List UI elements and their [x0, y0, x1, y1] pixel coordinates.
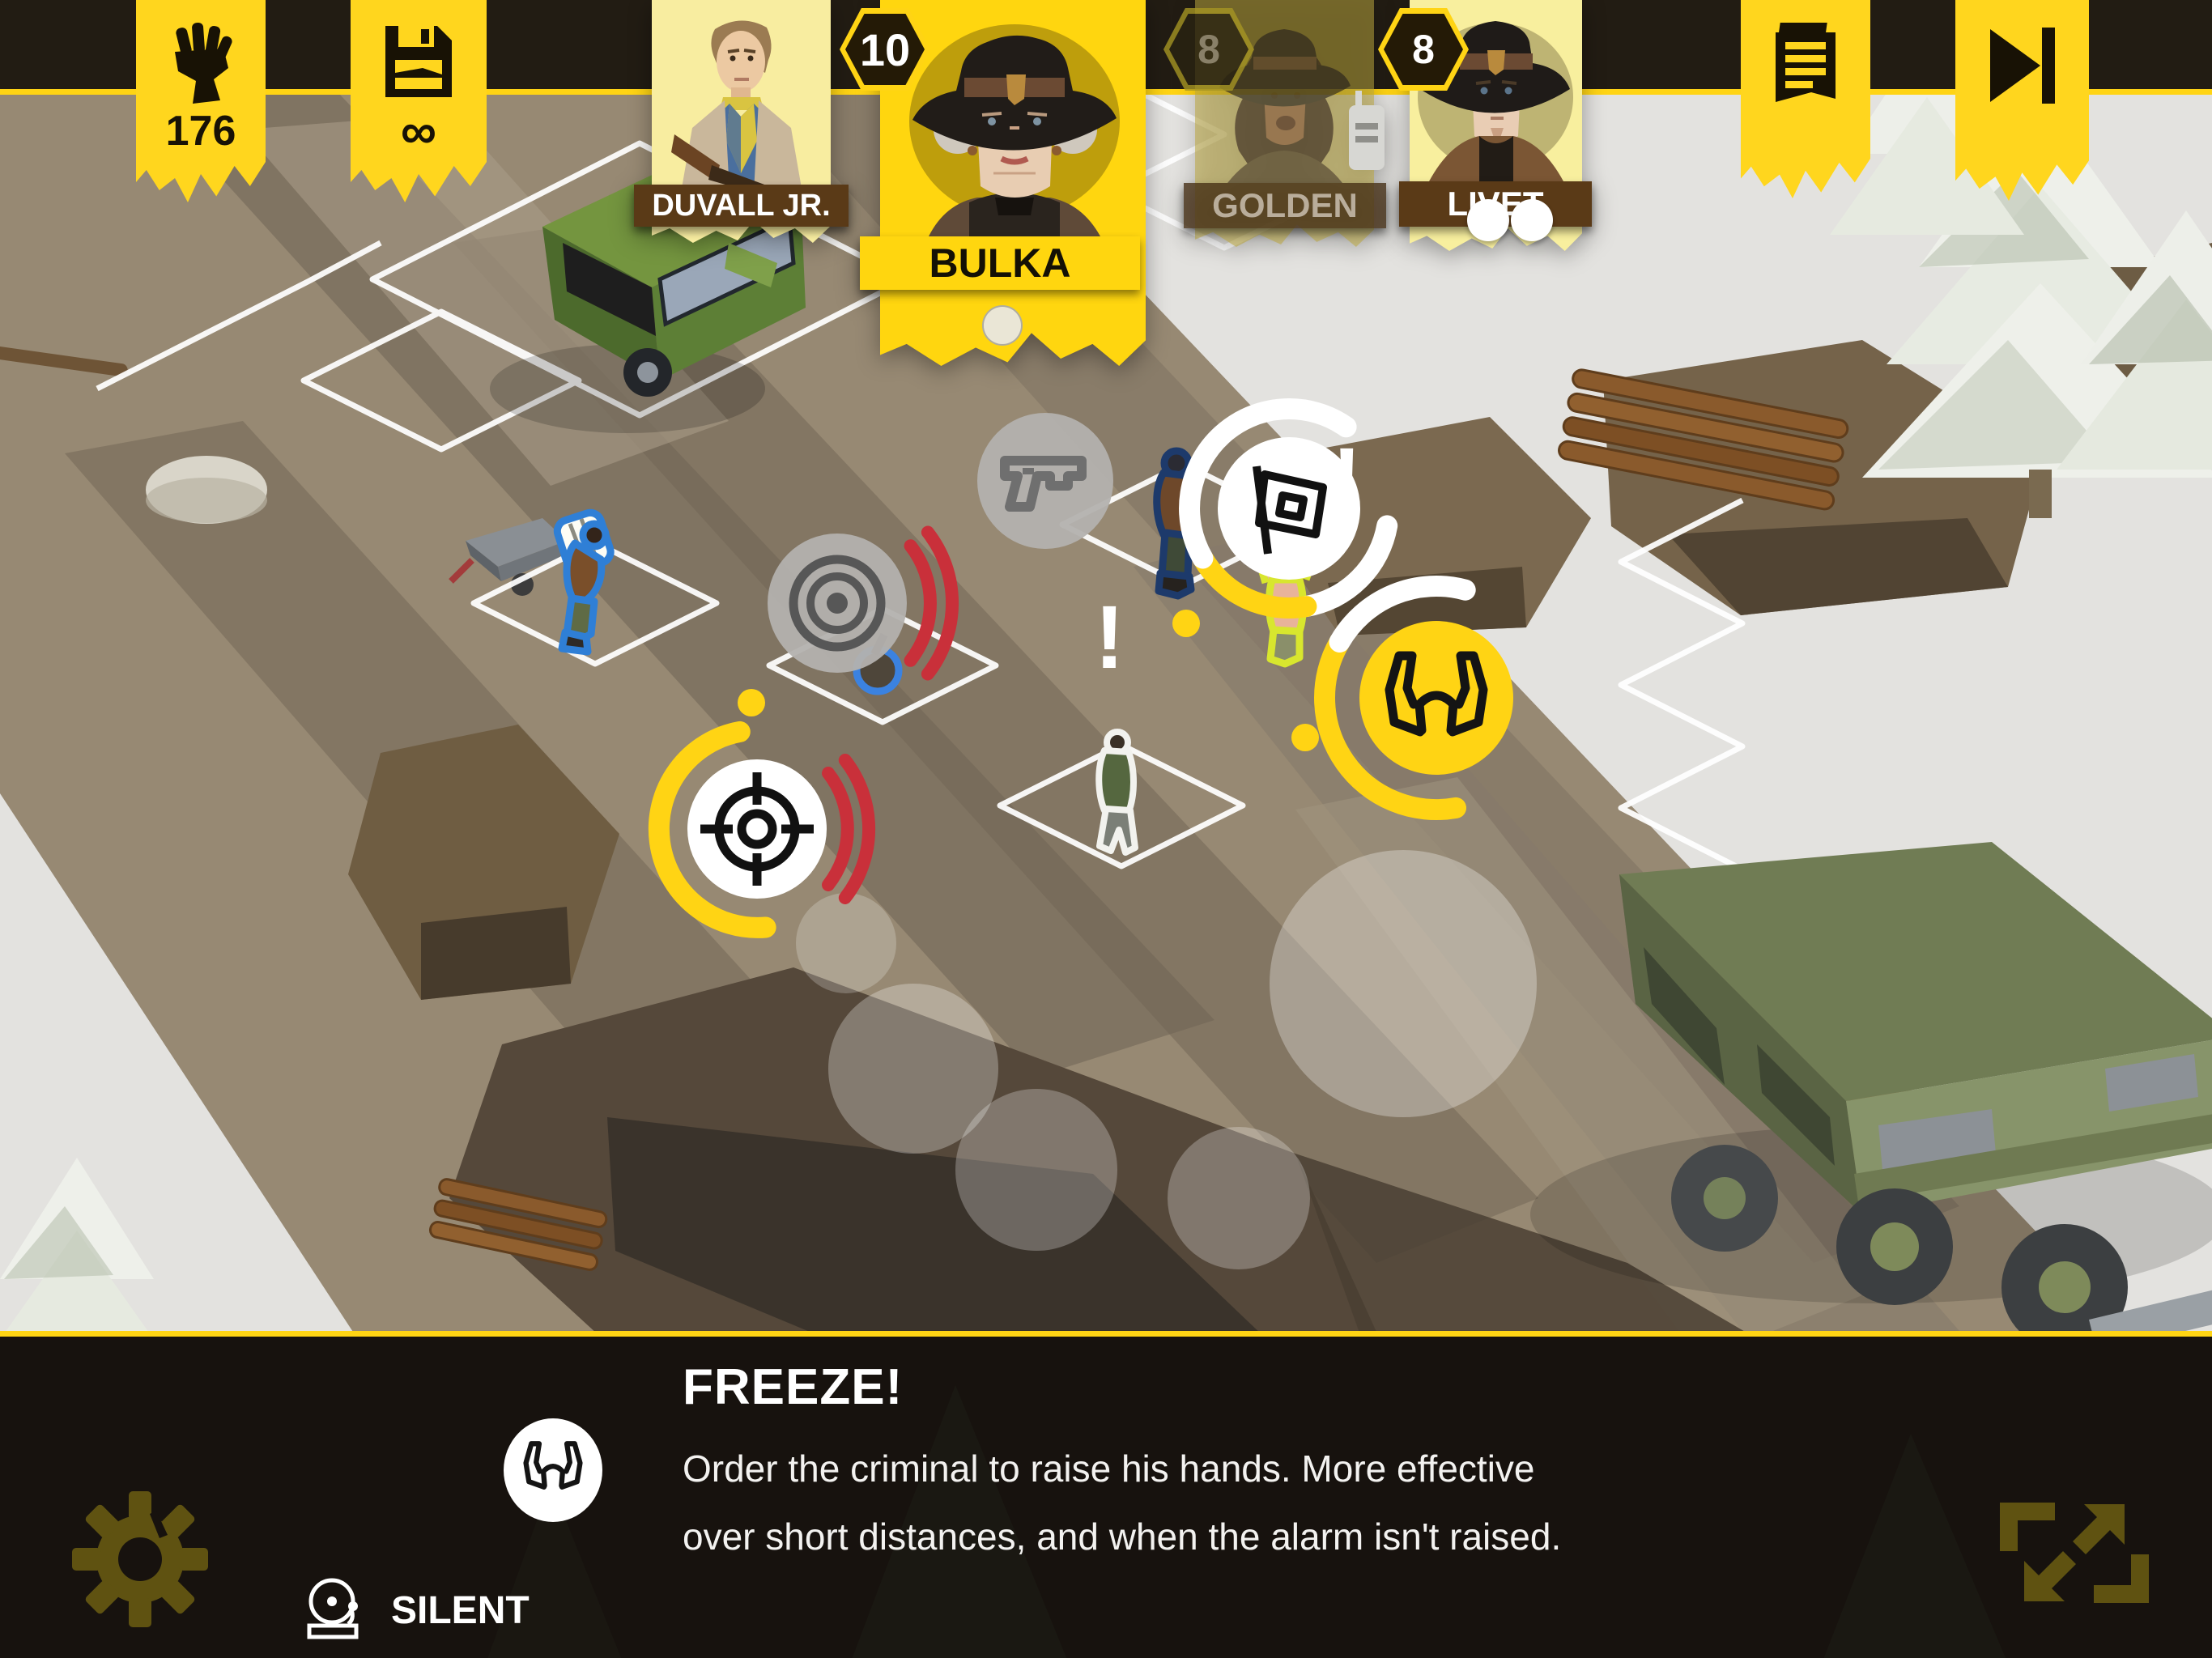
- siren-icon: [793, 559, 881, 647]
- action-point-dot: [1511, 199, 1553, 241]
- fullscreen-button[interactable]: [1993, 1496, 2155, 1609]
- saves-counter[interactable]: ∞: [351, 0, 487, 202]
- badge-value: 8: [1412, 26, 1435, 73]
- alert-exclamation: !: [1332, 430, 1362, 529]
- journal-button[interactable]: [1741, 0, 1870, 198]
- name-label: BULKA: [860, 236, 1140, 290]
- name-label: GOLDEN: [1184, 183, 1386, 228]
- morale-value: 176: [166, 110, 236, 152]
- alarm-bell-icon: [301, 1574, 371, 1643]
- end-turn-icon: [1984, 21, 2061, 110]
- alert-exclamation: !: [1095, 588, 1125, 687]
- squad-card-duvall[interactable]: DUVALL JR.: [652, 0, 831, 243]
- action-point-dot: [982, 305, 1023, 346]
- fist-icon: [164, 21, 238, 105]
- portrait-duvall: [652, 6, 831, 193]
- action-freeze-button[interactable]: [1359, 621, 1513, 775]
- hands-up-icon: [511, 1428, 595, 1512]
- ability-tag: SILENT: [391, 1588, 530, 1633]
- saves-value: ∞: [401, 107, 436, 157]
- badge-value: 8: [1197, 26, 1220, 73]
- action-alarm-button[interactable]: [768, 534, 907, 673]
- name-label: DUVALL JR.: [634, 185, 849, 227]
- expand-icon: [2000, 1503, 2149, 1603]
- ability-title: FREEZE!: [683, 1358, 903, 1416]
- settings-button[interactable]: [63, 1488, 217, 1634]
- description-line: Order the criminal to raise his hands. M…: [683, 1435, 1561, 1503]
- radio-icon: [1339, 91, 1396, 176]
- gear-icon: [72, 1491, 208, 1627]
- walking-civilian[interactable]: [1099, 732, 1135, 852]
- ability-description: Order the criminal to raise his hands. M…: [683, 1435, 1561, 1571]
- journal-icon: [1769, 21, 1842, 110]
- badge-value: 10: [860, 23, 910, 76]
- floppy-disk-icon: [381, 21, 457, 102]
- ability-icon-circle: [504, 1418, 602, 1522]
- action-point-dot: [1467, 199, 1509, 241]
- action-aim-button[interactable]: [687, 759, 827, 899]
- action-shoot-button[interactable]: [977, 413, 1113, 549]
- morale-counter[interactable]: 176: [136, 0, 266, 202]
- end-turn-button[interactable]: [1955, 0, 2089, 201]
- game-screen: ! ! 176 ∞: [0, 0, 2212, 1658]
- description-line: over short distances, and when the alarm…: [683, 1503, 1561, 1571]
